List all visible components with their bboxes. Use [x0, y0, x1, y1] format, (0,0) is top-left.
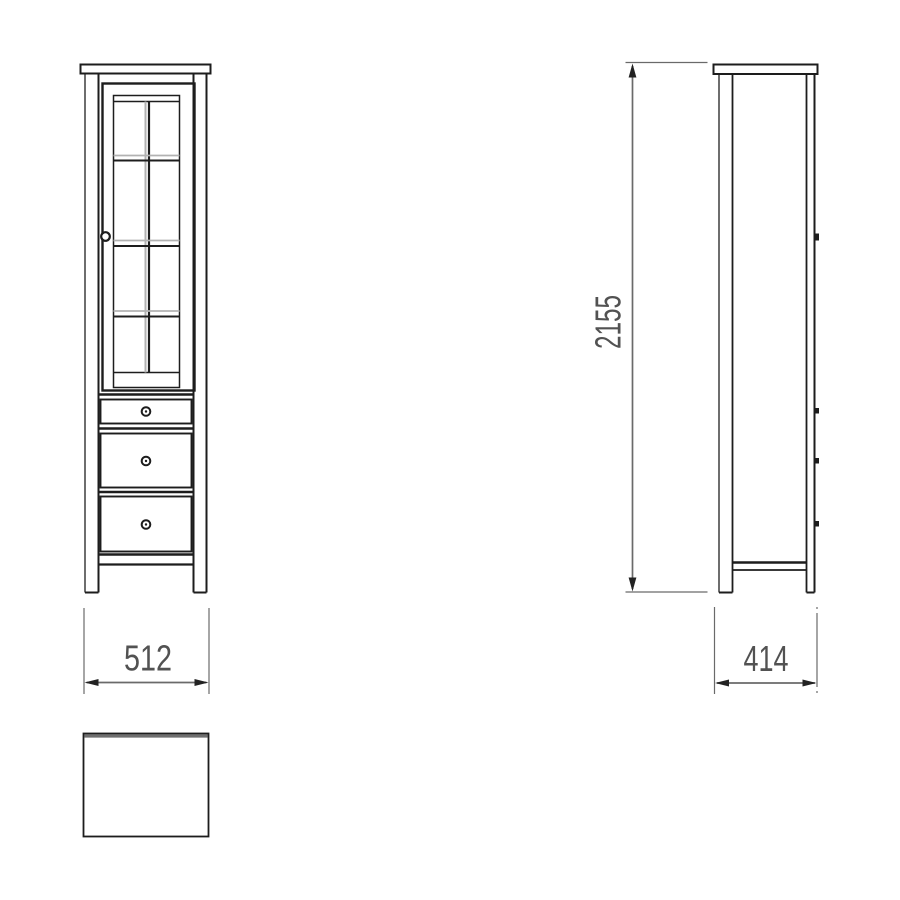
- width-arrow-right: [195, 679, 209, 686]
- height-arrow-up: [629, 64, 637, 78]
- drawer-stack: [99, 395, 194, 565]
- technical-drawing-canvas: 2155 512 414: [0, 0, 900, 900]
- drawer-knob-3: [142, 520, 151, 529]
- depth-dimension-label: 414: [744, 638, 789, 679]
- front-top-cap: [81, 65, 211, 74]
- drawer-knob-dot-2: [145, 460, 147, 462]
- top-view: [84, 734, 209, 837]
- width-dimension-label: 512: [124, 638, 172, 679]
- side-frame: [719, 73, 815, 593]
- door-knob: [101, 232, 110, 241]
- depth-arrow-left: [715, 680, 729, 687]
- drawer-knob-dot-1: [145, 410, 147, 412]
- drawer-knob-dot-3: [145, 523, 147, 525]
- side-view: [714, 65, 820, 593]
- glass-pane-grid: [114, 102, 180, 373]
- depth-dimension: 414: [715, 607, 818, 694]
- drawer-knob-1: [142, 407, 151, 416]
- side-drawer-knob-bump-1: [815, 408, 820, 414]
- height-arrow-down: [629, 578, 637, 592]
- side-door-knob-bump: [815, 234, 820, 241]
- top-view-outline: [84, 734, 209, 837]
- width-dimension: 512: [84, 608, 209, 694]
- side-top-cap: [714, 65, 818, 75]
- width-arrow-left: [85, 679, 99, 686]
- side-drawer-knob-bump-2: [815, 458, 820, 464]
- drawing-sheet: 2155 512 414: [0, 0, 900, 900]
- glass-door: [101, 84, 194, 391]
- height-dimension-label: 2155: [588, 295, 629, 349]
- depth-arrow-right: [803, 680, 817, 687]
- height-dimension: 2155: [588, 63, 708, 593]
- drawer-knob-2: [142, 457, 151, 466]
- side-drawer-knob-bump-3: [815, 521, 820, 527]
- front-view: [81, 65, 211, 593]
